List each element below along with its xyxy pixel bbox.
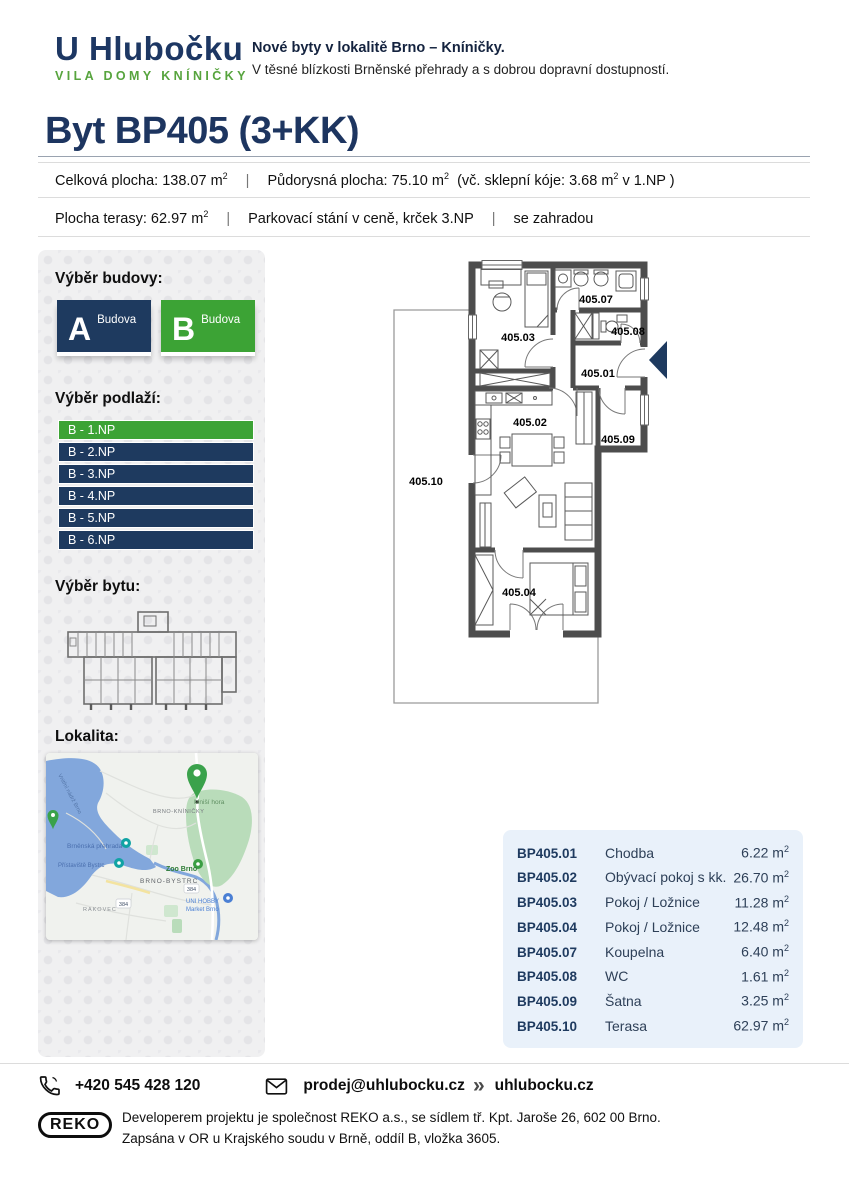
building-b-button[interactable]: B Budova xyxy=(161,300,255,352)
table-row: BP405.08WC1.61 m2 xyxy=(517,968,789,985)
map-park xyxy=(164,905,178,917)
building-a-letter: A xyxy=(68,313,91,345)
divider xyxy=(38,162,810,163)
building-a-label: Budova xyxy=(97,314,136,326)
room-label-405-07: 405.07 xyxy=(579,294,613,306)
map-label-bystrc: BRNO-BYSTRC xyxy=(140,878,198,885)
apartment-floor-plan: 405.03 405.07 405.08 405.01 405.02 405.0… xyxy=(385,255,675,720)
map-label-zoo: Zoo Brno xyxy=(166,866,197,873)
building-b-label: Budova xyxy=(201,314,240,326)
map-label-uni1: UNI HOBBY xyxy=(186,899,219,905)
email-icon xyxy=(264,1074,289,1099)
floor-item-b3np[interactable]: B - 3.NP xyxy=(58,464,254,484)
unit-heading: Výběr bytu: xyxy=(55,578,140,596)
room-label-405-10: 405.10 xyxy=(409,476,443,488)
developer-line1: Developerem projektu je společnost REKO … xyxy=(122,1108,782,1129)
table-row: BP405.10Terasa62.97 m2 xyxy=(517,1017,789,1034)
divider xyxy=(38,236,810,237)
logo-title: U Hlubočku xyxy=(55,32,249,65)
selector-sidebar: Výběr budovy: A Budova B Budova Výběr po… xyxy=(38,250,265,1057)
contact-phone[interactable]: +420 545 428 120 xyxy=(75,1077,200,1095)
svg-text:384: 384 xyxy=(187,887,196,893)
map-road-shield: 384 xyxy=(116,899,131,908)
floor-list: B - 1.NP B - 2.NP B - 3.NP B - 4.NP B - … xyxy=(58,420,254,552)
room-label-405-03: 405.03 xyxy=(501,332,535,344)
room-label-405-02: 405.02 xyxy=(513,417,547,429)
logo-subtitle: VILA DOMY KNÍNIČKY xyxy=(55,69,249,83)
map-road-shield: 384 xyxy=(184,884,199,893)
table-row: BP405.03Pokoj / Ložnice11.28 m2 xyxy=(517,894,789,911)
outer-walls xyxy=(472,265,644,634)
map-park xyxy=(172,919,182,933)
map-label-pristaviste: Přístaviště Bystrc xyxy=(58,863,104,869)
table-row: BP405.02Obývací pokoj s kk.26.70 m2 xyxy=(517,869,789,886)
tagline-bold: Nové byty v lokalitě Brno – Kníničky. xyxy=(252,40,669,56)
title-divider xyxy=(38,156,810,157)
floor-item-b5np[interactable]: B - 5.NP xyxy=(58,508,254,528)
location-heading: Lokalita: xyxy=(55,728,119,746)
map-label-rakovec: RAKOVEC xyxy=(83,907,117,913)
map-label-kninicky: BRNO-KNÍNIČKY xyxy=(153,808,205,815)
divider xyxy=(38,197,810,198)
unit-selector-thumbnail[interactable] xyxy=(56,602,248,719)
room-label-405-08: 405.08 xyxy=(611,326,645,338)
info-bar-terrace: Plocha terasy: 62.97 m2|Parkovací stání … xyxy=(55,209,593,227)
footer-divider xyxy=(0,1063,849,1064)
svg-text:384: 384 xyxy=(119,902,128,908)
entrance-arrow-icon xyxy=(649,341,667,379)
header-tagline: Nové byty v lokalitě Brno – Kníničky. V … xyxy=(252,40,669,77)
map-label-prehrada: Brněnská přehrada xyxy=(67,843,123,850)
contact-email[interactable]: prodej@uhlubocku.cz xyxy=(303,1077,465,1095)
floor-item-b6np[interactable]: B - 6.NP xyxy=(58,530,254,550)
table-row: BP405.04Pokoj / Ložnice12.48 m2 xyxy=(517,918,789,935)
floor-item-b2np[interactable]: B - 2.NP xyxy=(58,442,254,462)
building-a-button[interactable]: A Budova xyxy=(57,300,151,352)
page-title: Byt BP405 (3+KK) xyxy=(45,112,359,150)
developer-text: Developerem projektu je společnost REKO … xyxy=(122,1108,782,1150)
map-label-hora: Mniší hora xyxy=(194,799,225,806)
room-label-405-04: 405.04 xyxy=(502,587,537,599)
room-label-405-01: 405.01 xyxy=(581,368,615,380)
location-map[interactable]: 384 384 Vnitřní nádrž Brno BRNO-KNÍNIČKY… xyxy=(46,753,258,940)
map-label-uni2: Market Brno xyxy=(186,907,219,913)
chevrons-icon: » xyxy=(473,1074,485,1098)
floor-item-b1np[interactable]: B - 1.NP xyxy=(58,420,254,440)
floor-item-b4np[interactable]: B - 4.NP xyxy=(58,486,254,506)
building-b-letter: B xyxy=(172,313,195,345)
developer-line2: Zapsána v OR u Krajského soudu v Brně, o… xyxy=(122,1129,782,1150)
brand-logo: U Hlubočku VILA DOMY KNÍNIČKY xyxy=(55,32,249,83)
phone-icon xyxy=(38,1074,62,1098)
tagline-text: V těsné blízkosti Brněnské přehrady a s … xyxy=(252,62,669,77)
contact-bar: +420 545 428 120 prodej@uhlubocku.cz » u… xyxy=(38,1072,594,1100)
table-row: BP405.07Koupelna6.40 m2 xyxy=(517,943,789,960)
floor-heading: Výběr podlaží: xyxy=(55,390,161,408)
room-label-405-09: 405.09 xyxy=(601,434,635,446)
info-bar-areas: Celková plocha: 138.07 m2|Půdorysná ploc… xyxy=(55,171,675,189)
contact-website[interactable]: uhlubocku.cz xyxy=(495,1077,594,1095)
building-heading: Výběr budovy: xyxy=(55,270,163,288)
rooms-table: BP405.01Chodba6.22 m2 BP405.02Obývací po… xyxy=(503,830,803,1048)
table-row: BP405.01Chodba6.22 m2 xyxy=(517,844,789,861)
table-row: BP405.09Šatna3.25 m2 xyxy=(517,992,789,1009)
reko-logo: REKO xyxy=(38,1112,112,1138)
